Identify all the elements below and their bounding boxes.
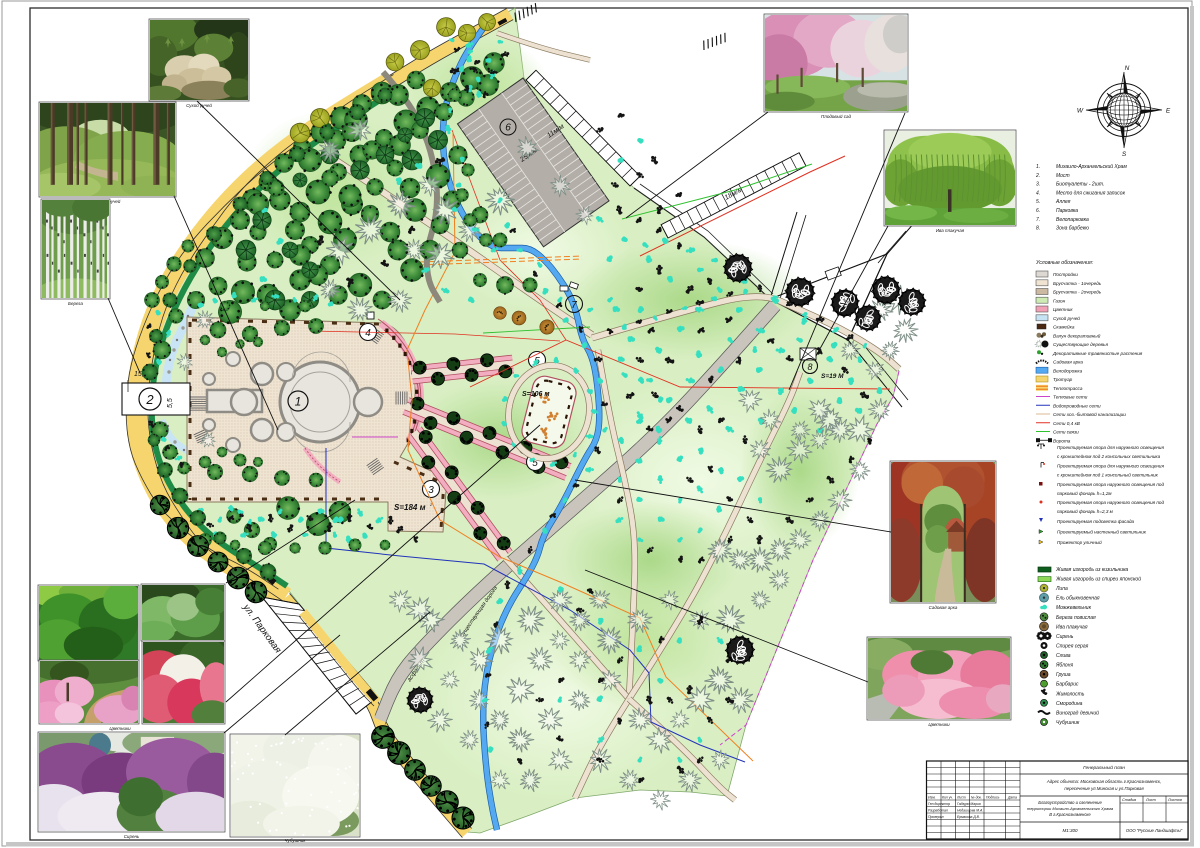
svg-text:Скамейка: Скамейка (1053, 324, 1075, 330)
svg-text:Плодовый сад: Плодовый сад (821, 113, 851, 119)
svg-text:Постройки: Постройки (1053, 271, 1078, 277)
svg-text:с кронштейном под 2 консольн: с кронштейном под 2 консольных светильни… (1057, 453, 1161, 459)
svg-text:Смородина: Смородина (1056, 701, 1083, 707)
svg-text:Подпись: Подпись (986, 796, 1000, 800)
svg-text:Береза повислая: Береза повислая (1056, 615, 1096, 621)
svg-text:Теплотрасса: Теплотрасса (1053, 386, 1083, 391)
svg-text:Сети связи: Сети связи (1053, 430, 1079, 435)
svg-text:Аллея: Аллея (1055, 199, 1071, 205)
svg-text:Ива плакучая: Ива плакучая (1056, 624, 1088, 630)
svg-text:Проектируемый настенный светил: Проектируемый настенный светильник (1057, 529, 1147, 535)
svg-text:Декоративные травянистые расте: Декоративные травянистые растения (1052, 351, 1143, 356)
svg-text:S: S (1122, 151, 1127, 158)
svg-text:Яблоня: Яблоня (1055, 663, 1073, 669)
svg-text:Велопарковка: Велопарковка (1056, 217, 1089, 223)
svg-text:Сирень: Сирень (1056, 634, 1074, 640)
svg-text:В г.Краснознаменске: В г.Краснознаменске (1049, 812, 1091, 817)
svg-text:1.: 1. (1036, 164, 1040, 170)
svg-text:Кол уч.: Кол уч. (942, 796, 953, 800)
svg-text:Слива: Слива (1056, 653, 1071, 659)
svg-text:7: 7 (571, 300, 577, 311)
svg-text:Проектируемая опора наружного: Проектируемая опора наружного освещения … (1057, 500, 1164, 505)
svg-text:пересечение ул.Минская и ул.Па: пересечение ул.Минская и ул.Парковая (1064, 786, 1144, 791)
svg-text:Береза: Береза (68, 301, 83, 306)
svg-text:Зона барбекю: Зона барбекю (1056, 226, 1089, 232)
svg-text:Сирень: Сирень (124, 834, 140, 839)
svg-text:Живая изгородь из спиреи японс: Живая изгородь из спиреи японской (1055, 576, 1141, 583)
svg-text:Ворота: Ворота (1053, 438, 1071, 443)
svg-text:Изм.: Изм. (928, 796, 936, 800)
svg-text:Водопроводные сети: Водопроводные сети (1053, 403, 1101, 408)
svg-text:S=184 м: S=184 м (394, 503, 426, 512)
svg-text:Тепловые сети: Тепловые сети (1053, 395, 1088, 400)
svg-text:Ива плакучая: Ива плакучая (936, 228, 965, 233)
svg-text:ООО “Русские Ландшафты”: ООО “Русские Ландшафты” (1126, 828, 1183, 833)
svg-text:E: E (1166, 108, 1171, 115)
svg-text:Парковка: Парковка (1056, 208, 1078, 214)
svg-text:Живая изгородь из кизильника: Живая изгородь из кизильника (1055, 567, 1128, 573)
svg-text:Виноград девичий: Виноград девичий (1056, 709, 1099, 716)
svg-text:Ген.директор: Ген.директор (928, 802, 950, 806)
svg-text:Условные обозначения:: Условные обозначения: (1036, 260, 1094, 266)
svg-text:Адрес объекта: Московская обла: Адрес объекта: Московская область г.Крас… (1046, 779, 1161, 784)
svg-text:5,5: 5,5 (167, 398, 174, 408)
svg-text:Велодорожка: Велодорожка (1053, 368, 1083, 373)
svg-text:Сети хоз.-бытовой канализации: Сети хоз.-бытовой канализации (1053, 411, 1126, 417)
svg-text:5.: 5. (1036, 199, 1040, 205)
svg-text:Барбарис: Барбарис (1056, 682, 1079, 688)
svg-text:6.: 6. (1036, 208, 1040, 214)
svg-text:Садовая арка: Садовая арка (1053, 360, 1083, 365)
svg-text:Михаило-Архангельский Храм: Михаило-Архангельский Храм (1056, 163, 1127, 170)
svg-text:Газон: Газон (1053, 298, 1066, 303)
svg-text:3: 3 (428, 485, 434, 496)
svg-text:Сухой ручей: Сухой ручей (1053, 315, 1080, 321)
svg-text:парковый фонарь h=1,2м: парковый фонарь h=1,2м (1057, 490, 1112, 496)
svg-text:Брусчатка - 2очередь: Брусчатка - 2очередь (1053, 290, 1102, 295)
svg-text:Цветник: Цветник (1053, 307, 1073, 312)
svg-text:Разработал: Разработал (928, 809, 948, 813)
svg-text:Дата: Дата (1007, 796, 1017, 800)
svg-text:2.: 2. (1035, 173, 1040, 179)
svg-text:М1:300: М1:300 (1062, 828, 1078, 833)
svg-text:Проектируемая опора для наружн: Проектируемая опора для наружного освеще… (1057, 464, 1164, 469)
svg-text:территории Михаило-Архангельск: территории Михаило-Архангельского Храма (1027, 806, 1114, 811)
svg-text:Чубушник: Чубушник (285, 838, 307, 843)
svg-text:Садовая арка: Садовая арка (929, 605, 958, 610)
svg-text:7.: 7. (1036, 217, 1040, 223)
svg-text:Цветники: Цветники (109, 726, 131, 731)
svg-text:6: 6 (505, 123, 511, 134)
svg-text:Прожектор уличный: Прожектор уличный (1057, 539, 1102, 545)
svg-text:Проверил: Проверил (928, 815, 944, 819)
svg-text:Листов: Листов (1167, 798, 1182, 802)
svg-text:Чубушник: Чубушник (1056, 720, 1080, 726)
svg-text:с кронштейном под 1 консольн: с кронштейном под 1 консольный светильни… (1057, 472, 1159, 478)
svg-text:Генеральный план: Генеральный план (1083, 764, 1125, 771)
svg-text:W: W (1077, 108, 1084, 115)
svg-text:S=106 м: S=106 м (522, 391, 550, 398)
svg-text:8: 8 (807, 362, 812, 372)
svg-text:4: 4 (365, 328, 371, 339)
svg-text:Цветники: Цветники (928, 722, 950, 727)
svg-text:№ док.: № док. (971, 796, 982, 800)
svg-text:Сети 0,4 кВ: Сети 0,4 кВ (1053, 421, 1080, 426)
svg-text:Существующие деревья: Существующие деревья (1053, 342, 1108, 347)
svg-text:S=19 М: S=19 М (821, 373, 844, 380)
svg-text:Проектируемая подсветка фасада: Проектируемая подсветка фасада (1057, 519, 1135, 524)
svg-text:8.: 8. (1036, 226, 1040, 232)
svg-text:Тротуар: Тротуар (1053, 377, 1073, 382)
svg-text:Проектируемая опора для наружн: Проектируемая опора для наружного освеще… (1057, 445, 1164, 450)
svg-text:Проектируемая опора наружного: Проектируемая опора наружного освещения … (1057, 482, 1164, 487)
svg-text:Мост: Мост (1056, 173, 1070, 179)
svg-text:Гадзуро Мария: Гадзуро Мария (957, 802, 981, 806)
svg-text:Жимолость: Жимолость (1055, 691, 1085, 697)
svg-text:Благоустройство и озеленение: Благоустройство и озеленение (1038, 800, 1102, 805)
svg-text:4.: 4. (1036, 190, 1040, 196)
svg-text:Валун декоративный: Валун декоративный (1053, 332, 1101, 338)
svg-text:Спирея серая: Спирея серая (1056, 643, 1089, 649)
svg-text:Груша: Груша (1056, 672, 1071, 678)
svg-text:Лист: Лист (1145, 798, 1156, 802)
svg-text:Стадия: Стадия (1122, 798, 1136, 802)
svg-text:Липа: Липа (1055, 586, 1068, 592)
svg-text:Недашцова М.А.: Недашцова М.А. (957, 809, 983, 813)
svg-text:парковый фонарь h=2,3 м: парковый фонарь h=2,3 м (1057, 508, 1114, 514)
svg-text:Брусчатка - 1очередь: Брусчатка - 1очередь (1053, 281, 1102, 286)
svg-text:Лист: Лист (956, 796, 966, 800)
svg-text:Ель обыкновенная: Ель обыкновенная (1056, 596, 1100, 602)
svg-text:Можжевельник: Можжевельник (1056, 605, 1092, 611)
svg-text:3.: 3. (1036, 182, 1040, 188)
svg-text:Ермакова Д.В.: Ермакова Д.В. (957, 815, 980, 819)
svg-text:1: 1 (295, 395, 302, 409)
svg-text:Биотуалеты - 2шт.: Биотуалеты - 2шт. (1056, 182, 1104, 188)
svg-text:N: N (1125, 65, 1130, 72)
svg-text:2: 2 (145, 392, 154, 407)
svg-text:Место для сжигания записок: Место для сжигания записок (1056, 190, 1126, 196)
